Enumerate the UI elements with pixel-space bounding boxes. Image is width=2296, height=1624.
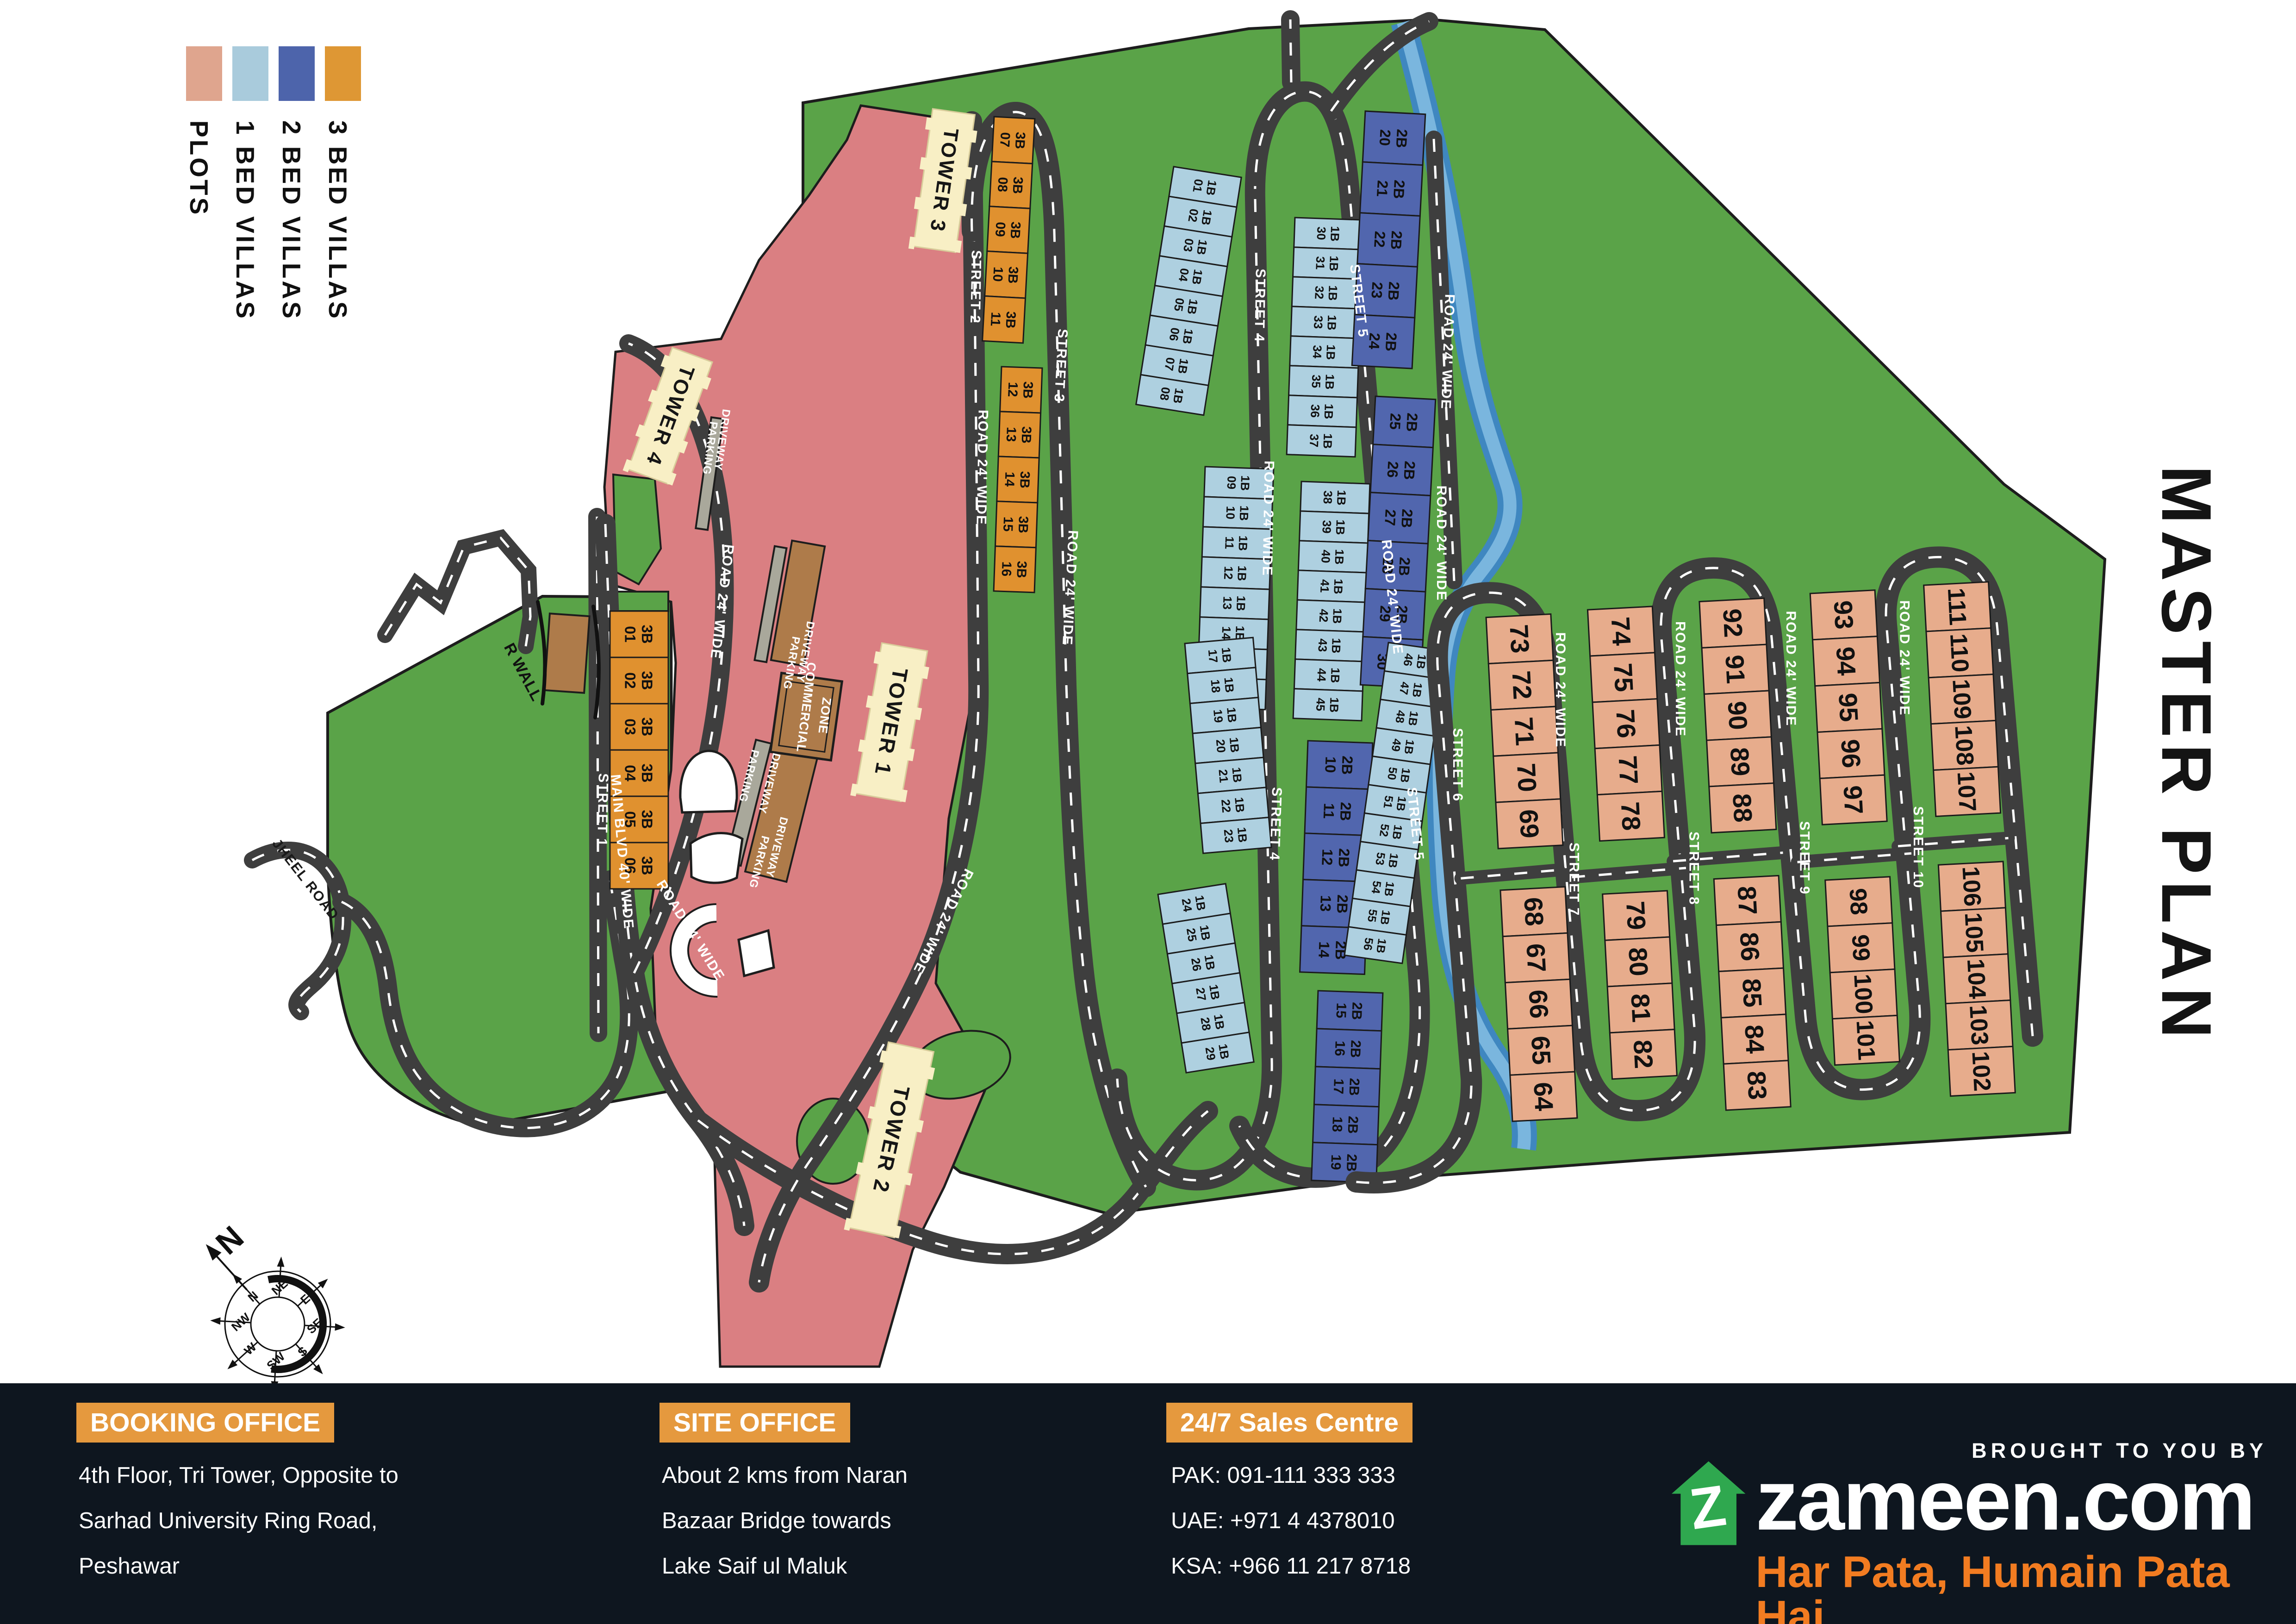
plot-label: 67 <box>1521 943 1551 973</box>
plot-label: 1B11 <box>1222 535 1251 551</box>
plot-label: 2B15 <box>1333 1001 1364 1020</box>
plot-label: 69 <box>1514 809 1544 839</box>
sales-phone-pak: PAK: 091-111 333 333 <box>1171 1453 1411 1498</box>
road-label-road-24-wide: ROAD 24' WIDE <box>1897 600 1912 716</box>
plot-label: 92 <box>1717 608 1748 638</box>
plot-label: 3B10 <box>990 265 1021 284</box>
plot-group-1b-30-37: 1B301B311B321B331B341B351B361B37 <box>1287 218 1363 457</box>
plot-label: 1B18 <box>1208 677 1237 694</box>
plot-label: 73 <box>1504 624 1535 654</box>
plot-group-p-79-82: 79808182 <box>1603 891 1677 1079</box>
road-label-street-7: STREET 7 <box>1566 843 1581 916</box>
legend-item-1: 1 BED VILLAS <box>232 46 268 321</box>
plot-label: 106 <box>1957 866 1985 907</box>
plot-label: 84 <box>1739 1024 1770 1055</box>
plot-label: 86 <box>1735 931 1765 962</box>
plot-label: 74 <box>1606 616 1636 647</box>
plot-label: 1B22 <box>1219 797 1247 814</box>
plot-label: 76 <box>1611 708 1641 739</box>
brand-name: zameen.com <box>1755 1457 2296 1543</box>
road-label-street-4: STREET 4 <box>1251 269 1268 343</box>
road-label-street-6: STREET 6 <box>1450 728 1465 802</box>
legend-label: PLOTS <box>186 120 212 217</box>
plot-label: 2B26 <box>1384 460 1418 481</box>
footer: BOOKING OFFICE 4th Floor, Tri Tower, Opp… <box>0 1383 2296 1624</box>
site-line-1: About 2 kms from Naran <box>662 1453 908 1498</box>
plot-label: 93 <box>1829 600 1859 631</box>
plot-label: 77 <box>1613 755 1643 785</box>
plot-label: 102 <box>1966 1050 1995 1092</box>
road-label-street-2: STREET 2 <box>967 250 984 324</box>
plot-label: 2B11 <box>1320 801 1355 821</box>
plot-label: 3B07 <box>997 131 1028 149</box>
plot-label: 108 <box>1949 725 1978 766</box>
brand-tagline: Har Pata, Humain Pata Hai <box>1755 1550 2296 1624</box>
plot-group-p-111-107: 111110109108107 <box>1924 582 2001 817</box>
plot-label: 1B17 <box>1206 647 1234 664</box>
plot-label: 2B20 <box>1376 128 1411 149</box>
plot-label: 1B42 <box>1317 608 1345 624</box>
plot-label: 3B03 <box>622 718 655 737</box>
amenity-shape <box>739 931 774 976</box>
sales-centre-numbers: PAK: 091-111 333 333 UAE: +971 4 4378010… <box>1171 1453 1411 1589</box>
road-label-street-4: STREET 4 <box>1267 787 1285 861</box>
plot-label: 88 <box>1727 793 1758 824</box>
booking-line-1: 4th Floor, Tri Tower, Opposite to <box>79 1453 398 1498</box>
plot-group-p-68-64: 6867666564 <box>1500 887 1577 1122</box>
plot-label: 87 <box>1732 885 1763 916</box>
plot-label: 89 <box>1725 747 1755 777</box>
site-line-2: Bazaar Bridge towards <box>662 1498 908 1543</box>
plot-label: 103 <box>1964 1004 1993 1046</box>
plot-label: 78 <box>1616 801 1646 831</box>
compass-point-NW: NW <box>229 1310 253 1334</box>
plot-label: 71 <box>1509 716 1540 747</box>
booking-office-address: 4th Floor, Tri Tower, Opposite to Sarhad… <box>79 1453 398 1589</box>
plot-label: 1B12 <box>1221 565 1250 581</box>
plot-label: 2B22 <box>1371 230 1405 250</box>
plot-label: 101 <box>1851 1019 1879 1061</box>
plot-label: 1B33 <box>1311 314 1339 331</box>
road-label-street-8: STREET 8 <box>1686 831 1701 905</box>
plot-label: 3B12 <box>1005 381 1035 399</box>
plot-label: 111 <box>1942 587 1971 626</box>
plot-label: 64 <box>1528 1081 1559 1112</box>
plot-label: 1B32 <box>1312 285 1340 301</box>
plot-label: 3B09 <box>992 220 1023 239</box>
plot-label: 1B31 <box>1313 255 1341 271</box>
legend-item-3: 3 BED VILLAS <box>325 46 361 321</box>
legend-swatch <box>186 46 222 101</box>
plot-label: 105 <box>1960 912 1988 954</box>
plot-label: 1B35 <box>1309 374 1337 390</box>
legend-item-2: 2 BED VILLAS <box>279 46 315 321</box>
plot-label: 3B16 <box>999 560 1029 578</box>
legend: PLOTS1 BED VILLAS2 BED VILLAS3 BED VILLA… <box>186 46 361 321</box>
plot-label: 96 <box>1836 738 1866 769</box>
plot-label: 1B40 <box>1319 549 1347 565</box>
legend-swatch <box>279 46 315 101</box>
legend-label: 1 BED VILLAS <box>232 120 258 321</box>
plot-label: 66 <box>1524 989 1554 1019</box>
plot-label: 90 <box>1723 700 1753 731</box>
road-label-road-24-wide: ROAD 24' WIDE <box>1783 611 1798 726</box>
plot-label: 1B36 <box>1308 403 1336 419</box>
plot-label: 3B01 <box>622 625 655 644</box>
plot-label: 2B13 <box>1317 893 1351 913</box>
plot-group-p-87-83: 8786858483 <box>1714 875 1791 1110</box>
plot-group-1b-38-45: 1B381B391B401B411B421B431B441B45 <box>1293 481 1370 721</box>
booking-line-3: Peshawar <box>79 1543 398 1589</box>
plot-label: 81 <box>1625 993 1656 1024</box>
plot-group-p-93-97: 9394959697 <box>1810 590 1887 825</box>
plot-label: 2B14 <box>1315 940 1350 960</box>
plot-label: 1B21 <box>1216 767 1244 784</box>
plot-label: 80 <box>1623 947 1654 977</box>
plot-group-p-74-78: 7475767778 <box>1587 606 1664 841</box>
plot-label: 79 <box>1621 900 1651 931</box>
plot-label: 1B37 <box>1307 433 1335 449</box>
road-label-road-24-wide: ROAD 24' WIDE <box>1259 461 1276 576</box>
booking-line-2: Sarhad University Ring Road, <box>79 1498 398 1543</box>
plot-label: 1B44 <box>1314 667 1343 683</box>
plot-label: 1B20 <box>1213 737 1242 754</box>
booking-office-badge: BOOKING OFFICE <box>76 1403 334 1443</box>
plot-label: 1B23 <box>1221 826 1250 844</box>
plot-label: 2B16 <box>1332 1039 1363 1058</box>
plot-label: 1B30 <box>1314 225 1343 242</box>
plot-label: 2B21 <box>1374 179 1408 200</box>
plot-label: 1B09 <box>1225 475 1253 491</box>
road-label-road-24-wide: ROAD 24' WIDE <box>973 410 990 525</box>
plot-label: 85 <box>1737 978 1767 1008</box>
road-label-street-1: STREET 1 <box>594 773 611 847</box>
plot-label: 1B19 <box>1211 706 1239 724</box>
plot-label: 3B08 <box>995 175 1026 194</box>
road-label-road-24-wide: ROAD 24' WIDE <box>1553 632 1568 748</box>
r-wall-building <box>544 613 589 693</box>
sales-phone-uae: UAE: +971 4 4378010 <box>1171 1498 1411 1543</box>
plot-label: 104 <box>1962 958 1991 1000</box>
site-line-3: Lake Saif ul Maluk <box>662 1543 908 1589</box>
plot-group-p-98-101: 9899100101 <box>1825 877 1900 1065</box>
legend-label: 3 BED VILLAS <box>325 120 350 321</box>
legend-item-0: PLOTS <box>186 46 222 321</box>
plot-label: 3B13 <box>1003 425 1034 443</box>
legend-swatch <box>232 46 268 101</box>
plot-label: 91 <box>1720 654 1750 685</box>
sales-centre-badge: 24/7 Sales Centre <box>1166 1403 1412 1443</box>
page-title: MASTER PLAN <box>2151 465 2221 1045</box>
plot-label: 1B34 <box>1310 344 1338 360</box>
plot-label: 1B41 <box>1318 578 1346 594</box>
zameen-logo: Z zameen.com Har Pata, Humain Pata Hai <box>1670 1457 2296 1624</box>
plot-label: 1B43 <box>1315 637 1344 654</box>
sales-phone-ksa: KSA: +966 11 217 8718 <box>1171 1543 1411 1589</box>
plot-label: 110 <box>1945 633 1973 673</box>
plot-label: 2B27 <box>1381 508 1416 529</box>
plot-label: 2B17 <box>1331 1077 1362 1096</box>
zameen-house-icon: Z <box>1670 1457 1747 1549</box>
plot-label: 65 <box>1526 1035 1556 1066</box>
plot-label: 2B18 <box>1329 1115 1361 1134</box>
plot-label: 1B13 <box>1220 595 1248 611</box>
plot-label: 2B19 <box>1328 1153 1359 1172</box>
plot-label: 1B38 <box>1321 489 1349 506</box>
amenity-shape <box>691 833 742 883</box>
legend-label: 2 BED VILLAS <box>279 120 304 321</box>
plot-label: 99 <box>1847 934 1875 962</box>
site-office-badge: SITE OFFICE <box>660 1403 850 1443</box>
plot-label: 1B39 <box>1319 519 1348 535</box>
road-label-road-24-wide: ROAD 24' WIDE <box>1673 621 1688 737</box>
plot-label: 3B14 <box>1002 470 1032 488</box>
plot-label: 1B45 <box>1313 697 1342 713</box>
plot-label: 107 <box>1952 771 1981 812</box>
plot-label: 3B02 <box>622 671 655 690</box>
plot-label: 70 <box>1512 762 1542 793</box>
plot-label: 68 <box>1518 896 1549 927</box>
legend-swatch <box>325 46 361 101</box>
plot-label: 1B10 <box>1223 505 1251 521</box>
plot-label: 75 <box>1608 662 1639 693</box>
plot-group-p-73-69: 7372717069 <box>1486 614 1563 849</box>
plot-label: 2B10 <box>1322 755 1356 775</box>
plot-label: 3B15 <box>1000 515 1031 533</box>
plot-group-p-106-102: 106105104103102 <box>1938 862 2015 1096</box>
plot-group-2b-15-19: 2B152B162B172B182B19 <box>1312 991 1383 1183</box>
plot-label: 3B04 <box>622 764 655 783</box>
road-label-street-9: STREET 9 <box>1797 821 1812 895</box>
plot-group-3b-12-16: 3B123B133B143B153B16 <box>994 367 1042 593</box>
plot-label: 94 <box>1831 646 1861 676</box>
road-label-road-24-wide: ROAD 24' WIDE <box>1434 486 1449 601</box>
plot-group-p-92-88: 9291908988 <box>1699 598 1776 833</box>
plot-label: 109 <box>1947 678 1976 720</box>
plot-label: 98 <box>1844 887 1873 916</box>
plot-label: 72 <box>1507 670 1537 700</box>
plot-label: 100 <box>1848 973 1877 1015</box>
plot-label: 82 <box>1628 1039 1659 1069</box>
plot-label: 2B23 <box>1368 280 1402 301</box>
plot-label: 97 <box>1838 785 1869 815</box>
road-label-street-10: STREET 10 <box>1910 806 1926 889</box>
site-office-address: About 2 kms from Naran Bazaar Bridge tow… <box>662 1453 908 1589</box>
plot-label: 2B25 <box>1387 412 1421 432</box>
master-plan-poster: 3B013B023B033B043B053B063B073B083B093B10… <box>0 0 2296 1624</box>
plot-label: 83 <box>1742 1070 1773 1101</box>
plot-label: 95 <box>1833 692 1864 723</box>
plot-label: 2B12 <box>1319 848 1353 868</box>
